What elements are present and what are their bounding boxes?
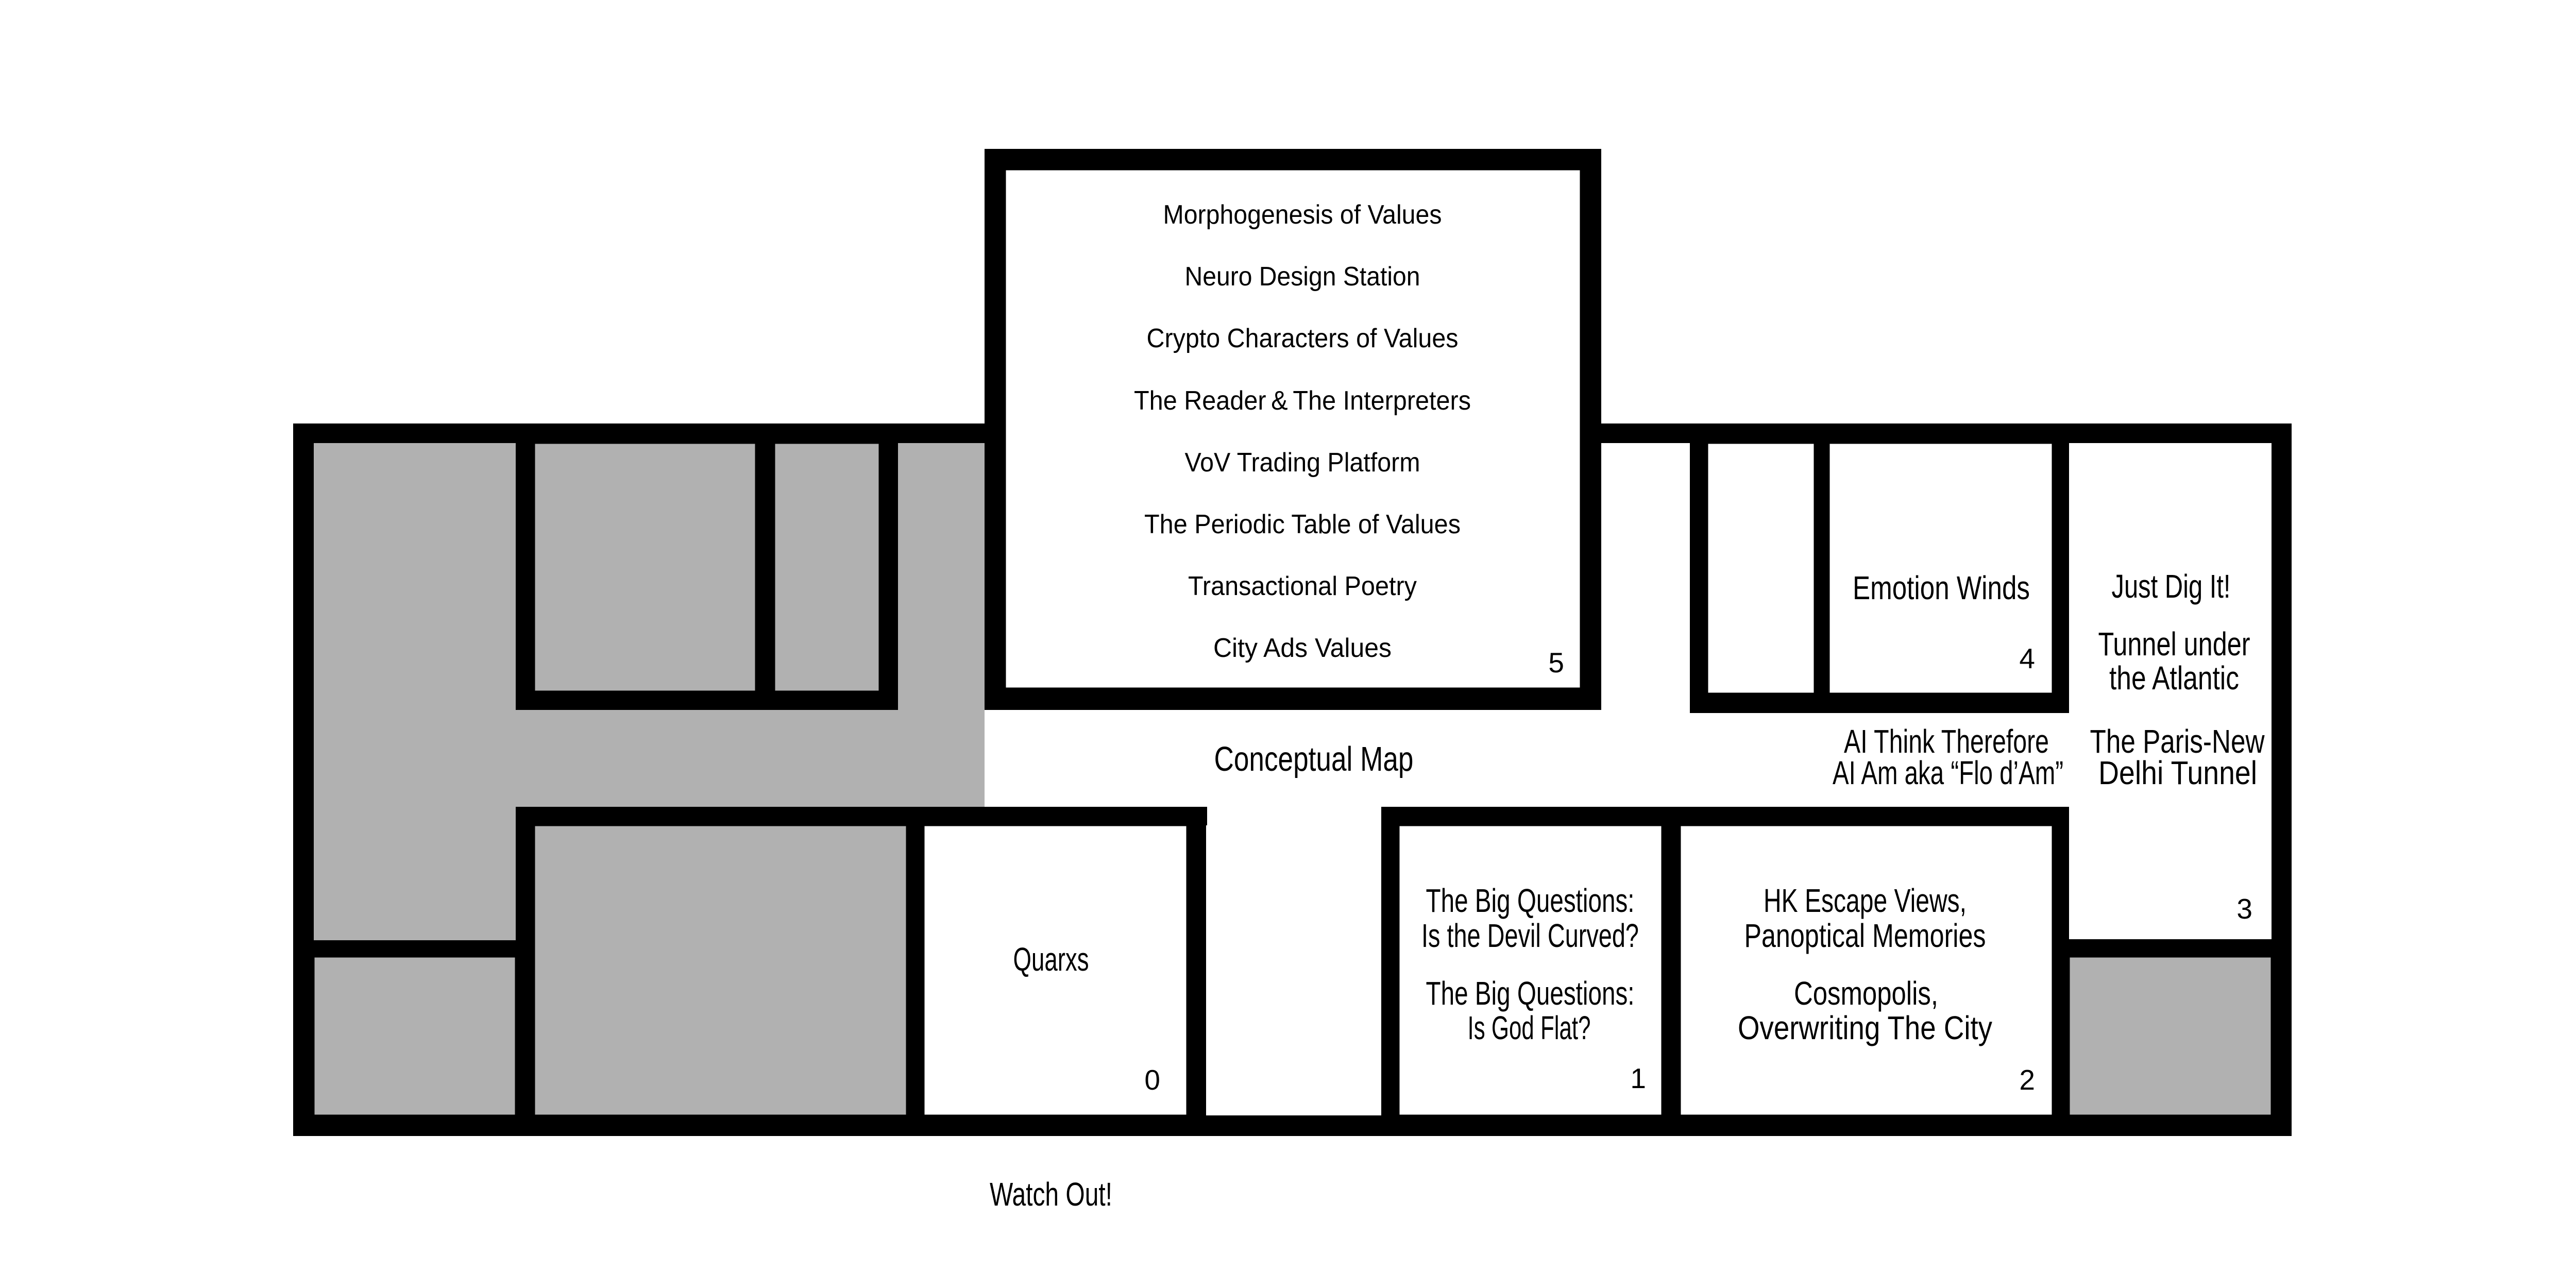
svg-text:Emotion Winds: Emotion Winds [1853, 569, 2030, 606]
svg-text:Crypto Characters of Values: Crypto Characters of Values [1147, 324, 1459, 353]
svg-text:The Periodic Table of Values: The Periodic Table of Values [1144, 510, 1461, 539]
svg-text:the Atlantic: the Atlantic [2109, 659, 2239, 697]
svg-text:1: 1 [1630, 1062, 1646, 1094]
svg-text:3: 3 [2236, 893, 2252, 925]
svg-text:City Ads Values: City Ads Values [1213, 633, 1392, 663]
svg-text:Cosmopolis,: Cosmopolis, [1794, 975, 1938, 1012]
svg-text:Just Dig It!: Just Dig It! [2112, 568, 2231, 605]
svg-text:The Big Questions:: The Big Questions: [1426, 975, 1635, 1012]
svg-text:AI Am aka “Flo d’Am”: AI Am aka “Flo d’Am” [1833, 754, 2063, 791]
svg-text:Panoptical Memories: Panoptical Memories [1744, 917, 1986, 954]
svg-text:Delhi Tunnel: Delhi Tunnel [2098, 754, 2257, 791]
svg-text:5: 5 [1548, 647, 1564, 679]
svg-text:4: 4 [2019, 642, 2035, 674]
svg-text:Quarxs: Quarxs [1013, 941, 1089, 978]
svg-text:The Reader & The Interpreters: The Reader & The Interpreters [1134, 386, 1471, 416]
svg-text:2: 2 [2019, 1064, 2035, 1096]
svg-text:Watch Out!: Watch Out! [990, 1176, 1112, 1213]
svg-text:Tunnel under: Tunnel under [2098, 625, 2250, 663]
svg-text:VoV Trading Platform: VoV Trading Platform [1185, 448, 1420, 478]
svg-text:Is God Flat?: Is God Flat? [1468, 1009, 1591, 1046]
svg-text:Overwriting The City: Overwriting The City [1738, 1009, 1992, 1046]
svg-text:Is the Devil Curved?: Is the Devil Curved? [1421, 917, 1639, 954]
svg-text:Neuro Design Station: Neuro Design Station [1185, 262, 1420, 292]
svg-text:The Big Questions:: The Big Questions: [1426, 882, 1635, 919]
svg-text:Conceptual Map: Conceptual Map [1214, 740, 1414, 778]
svg-text:HK Escape Views,: HK Escape Views, [1764, 882, 1967, 919]
svg-text:0: 0 [1144, 1064, 1160, 1096]
svg-text:Morphogenesis of Values: Morphogenesis of Values [1163, 200, 1442, 230]
svg-text:Transactional Poetry: Transactional Poetry [1188, 571, 1417, 601]
